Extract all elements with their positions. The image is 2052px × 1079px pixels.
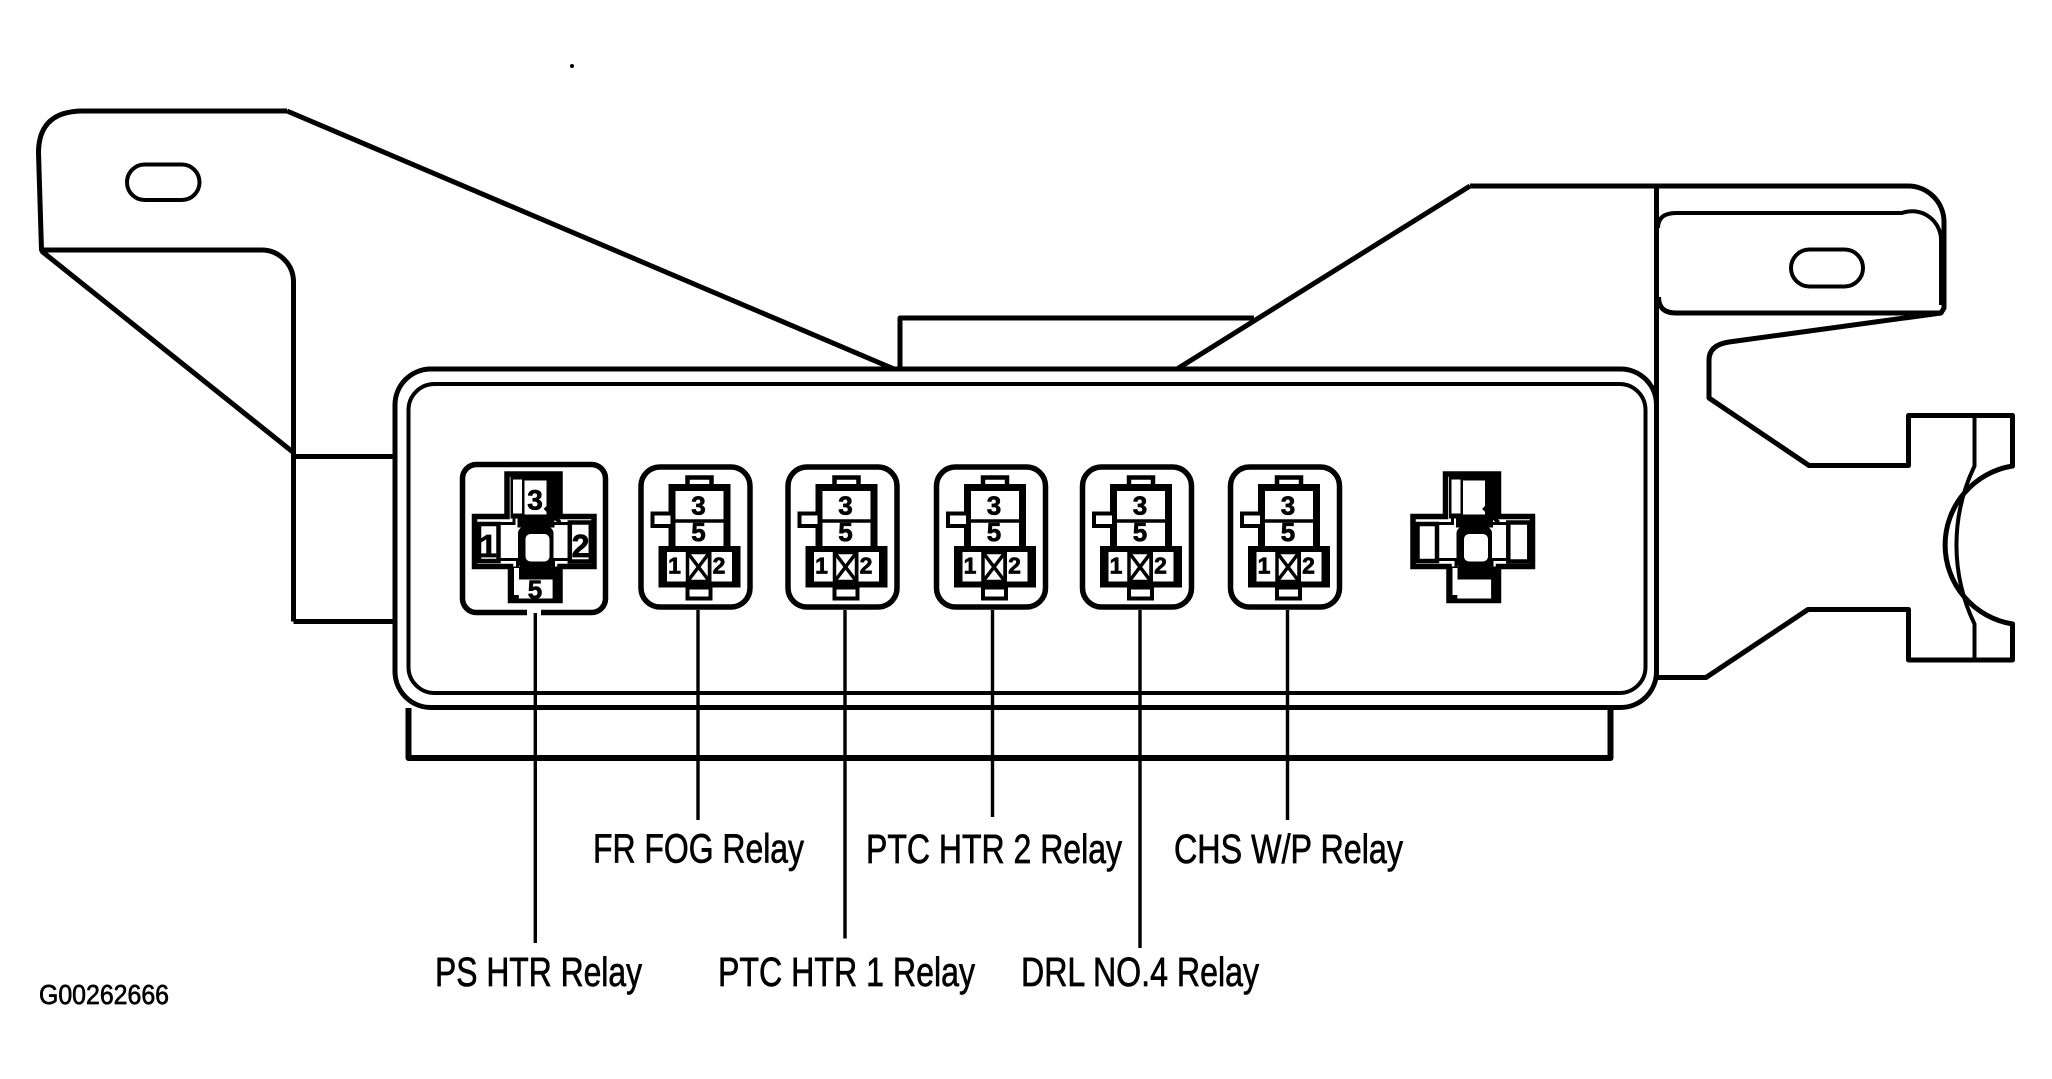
svg-text:PTC HTR 1 Relay: PTC HTR 1 Relay <box>718 949 975 995</box>
svg-text:5: 5 <box>528 575 542 605</box>
svg-text:G00262666: G00262666 <box>39 979 169 1010</box>
svg-text:DRL NO.4 Relay: DRL NO.4 Relay <box>1021 949 1259 995</box>
svg-text:1: 1 <box>479 528 497 564</box>
svg-text:FR FOG Relay: FR FOG Relay <box>593 826 804 872</box>
svg-text:CHS W/P Relay: CHS W/P Relay <box>1174 826 1403 872</box>
svg-text:3: 3 <box>527 485 543 516</box>
svg-text:PTC HTR 2 Relay: PTC HTR 2 Relay <box>866 826 1122 872</box>
svg-text:2: 2 <box>572 528 590 564</box>
svg-text:PS HTR Relay: PS HTR Relay <box>435 949 642 995</box>
